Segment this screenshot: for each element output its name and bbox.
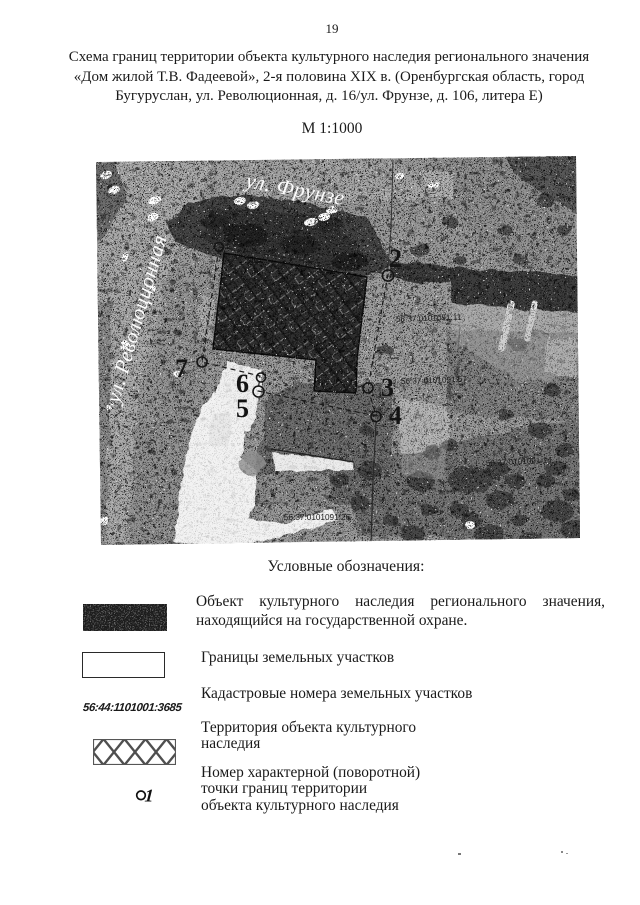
svg-text:2: 2 bbox=[389, 244, 402, 273]
svg-text:3: 3 bbox=[381, 373, 394, 402]
svg-text:6: 6 bbox=[236, 369, 249, 398]
svg-text:5: 5 bbox=[236, 394, 249, 423]
svg-text:56:37:0101091:26: 56:37:0101091:26 bbox=[284, 513, 350, 522]
svg-text:4: 4 bbox=[389, 401, 402, 430]
svg-text:1: 1 bbox=[144, 785, 154, 805]
svg-text:7: 7 bbox=[175, 354, 188, 383]
